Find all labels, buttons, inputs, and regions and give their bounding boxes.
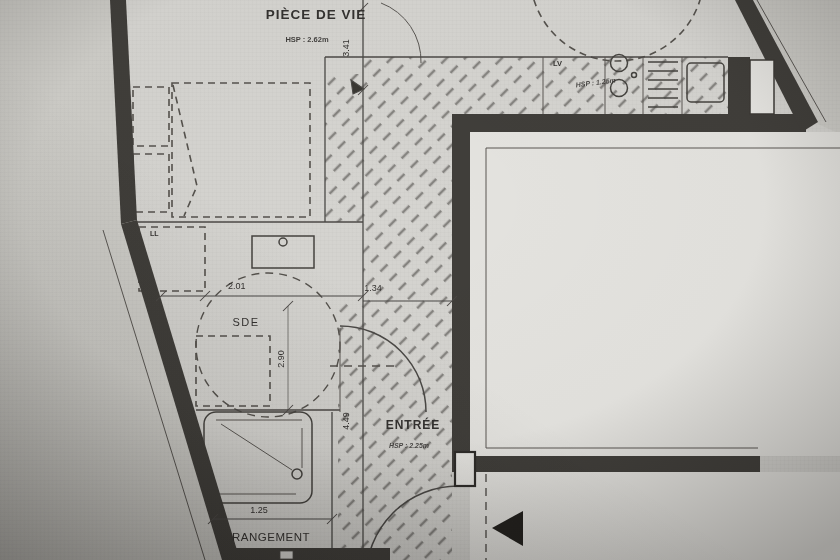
floorplan-svg: PIÈCE DE VIE HSP : 2.62m 3.41 LV HSP : 1… (0, 0, 840, 560)
floorplan-photo: PIÈCE DE VIE HSP : 2.62m 3.41 LV HSP : 1… (0, 0, 840, 560)
photo-corner-shadow (0, 0, 840, 560)
